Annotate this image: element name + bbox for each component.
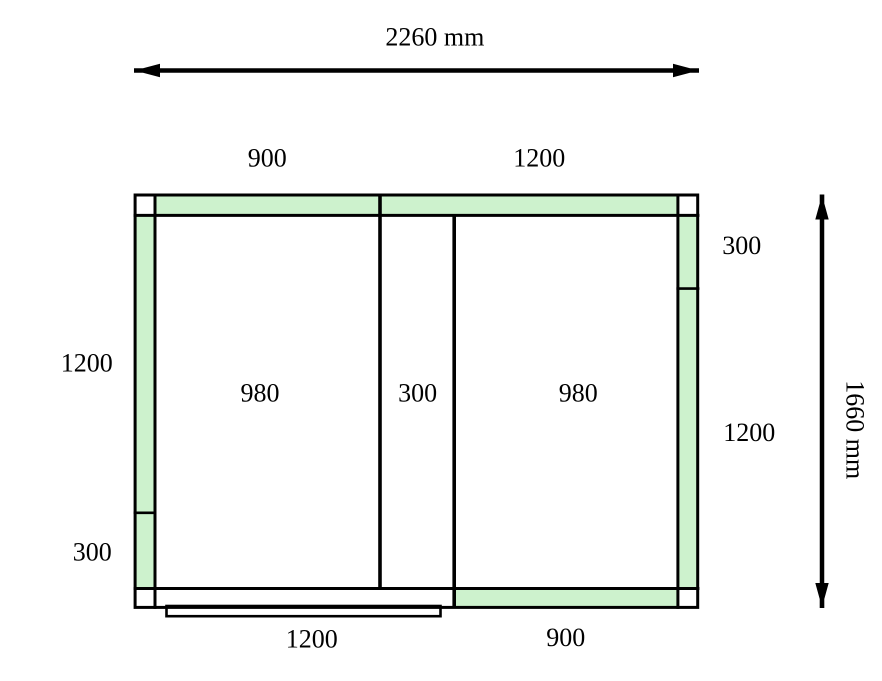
- svg-text:300: 300: [398, 379, 437, 408]
- svg-text:300: 300: [73, 538, 112, 567]
- svg-text:980: 980: [241, 379, 280, 408]
- svg-text:300: 300: [722, 231, 761, 260]
- svg-text:900: 900: [546, 623, 585, 652]
- svg-text:1660 mm: 1660 mm: [840, 380, 869, 479]
- svg-text:1200: 1200: [513, 143, 565, 172]
- svg-text:1200: 1200: [286, 625, 338, 654]
- svg-text:1200: 1200: [723, 418, 775, 447]
- svg-text:900: 900: [248, 143, 287, 172]
- svg-text:1200: 1200: [61, 349, 113, 378]
- svg-text:2260 mm: 2260 mm: [385, 23, 484, 52]
- svg-text:980: 980: [559, 379, 598, 408]
